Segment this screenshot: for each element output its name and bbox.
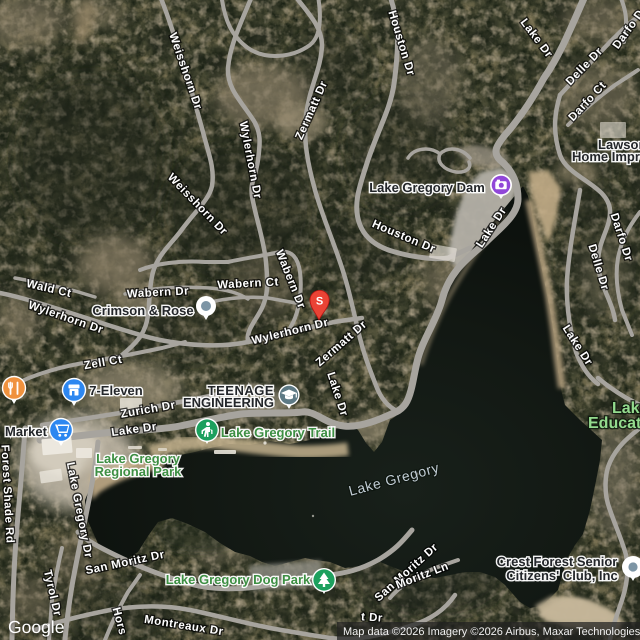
svg-text:Educatio: Educatio	[588, 415, 640, 432]
svg-text:7-Eleven: 7-Eleven	[89, 383, 143, 398]
svg-text:Crimson & Rose: Crimson & Rose	[92, 303, 193, 318]
svg-text:Citizens' Club, Inc: Citizens' Club, Inc	[506, 568, 617, 583]
svg-text:Crest Forest Senior: Crest Forest Senior	[497, 554, 618, 569]
svg-text:Map data ©2026 Imagery ©2026: Map data ©2026 Imagery ©2026 Airbus, Max…	[343, 626, 640, 638]
svg-text:Lake Gregory Dam: Lake Gregory Dam	[369, 180, 485, 195]
svg-text:Market: Market	[5, 424, 48, 439]
svg-text:Lake Gregory Trail: Lake Gregory Trail	[221, 425, 335, 440]
svg-text:Google: Google	[8, 617, 64, 637]
svg-text:Regional Park: Regional Park	[95, 464, 182, 479]
svg-text:Lake Gregory Dog Park: Lake Gregory Dog Park	[166, 572, 311, 587]
svg-text:S: S	[316, 296, 323, 308]
svg-text:Home Improv: Home Improv	[572, 149, 640, 164]
svg-text:ENGINEERING: ENGINEERING	[183, 395, 274, 410]
